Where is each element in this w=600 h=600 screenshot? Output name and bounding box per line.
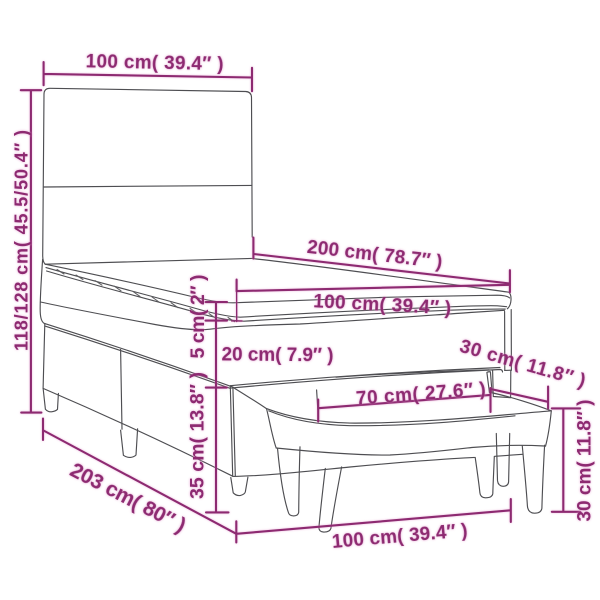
svg-text:100 cm( 39.4″ ): 100 cm( 39.4″ ): [313, 291, 452, 319]
svg-text:35 cm( 13.8″ ): 35 cm( 13.8″ ): [187, 372, 209, 499]
svg-text:30 cm( 11.8″ ): 30 cm( 11.8″ ): [575, 400, 596, 522]
svg-text:5 cm( 2″ ): 5 cm( 2″ ): [187, 275, 209, 359]
svg-text:20 cm( 7.9″ ): 20 cm( 7.9″ ): [221, 344, 333, 366]
svg-text:118/128 cm( 45.5/50.4″ ): 118/128 cm( 45.5/50.4″ ): [12, 130, 32, 351]
svg-text:100 cm( 39.4″ ): 100 cm( 39.4″ ): [331, 520, 468, 553]
svg-text:70 cm( 27.6″ ): 70 cm( 27.6″ ): [355, 379, 486, 410]
svg-text:100 cm( 39.4″ ): 100 cm( 39.4″ ): [85, 51, 223, 75]
